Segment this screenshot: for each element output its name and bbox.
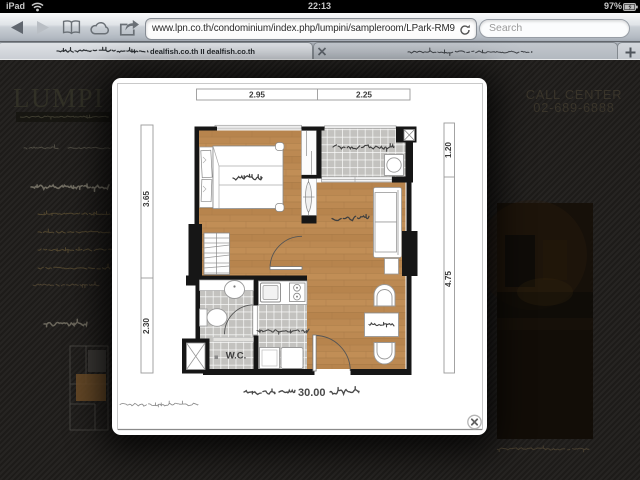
svg-text:4.75: 4.75 <box>444 271 453 287</box>
svg-text:02-689-6888: 02-689-6888 <box>533 100 614 115</box>
svg-text:W.C.: W.C. <box>226 351 247 362</box>
svg-text:3.65: 3.65 <box>142 191 151 207</box>
svg-text:2.95: 2.95 <box>249 90 265 99</box>
svg-text:2.30: 2.30 <box>142 318 151 334</box>
svg-text:LUMPI: LUMPI <box>13 83 105 113</box>
svg-text:2.25: 2.25 <box>356 90 372 99</box>
svg-text:30.00: 30.00 <box>298 387 326 399</box>
svg-text:1.20: 1.20 <box>444 142 453 158</box>
